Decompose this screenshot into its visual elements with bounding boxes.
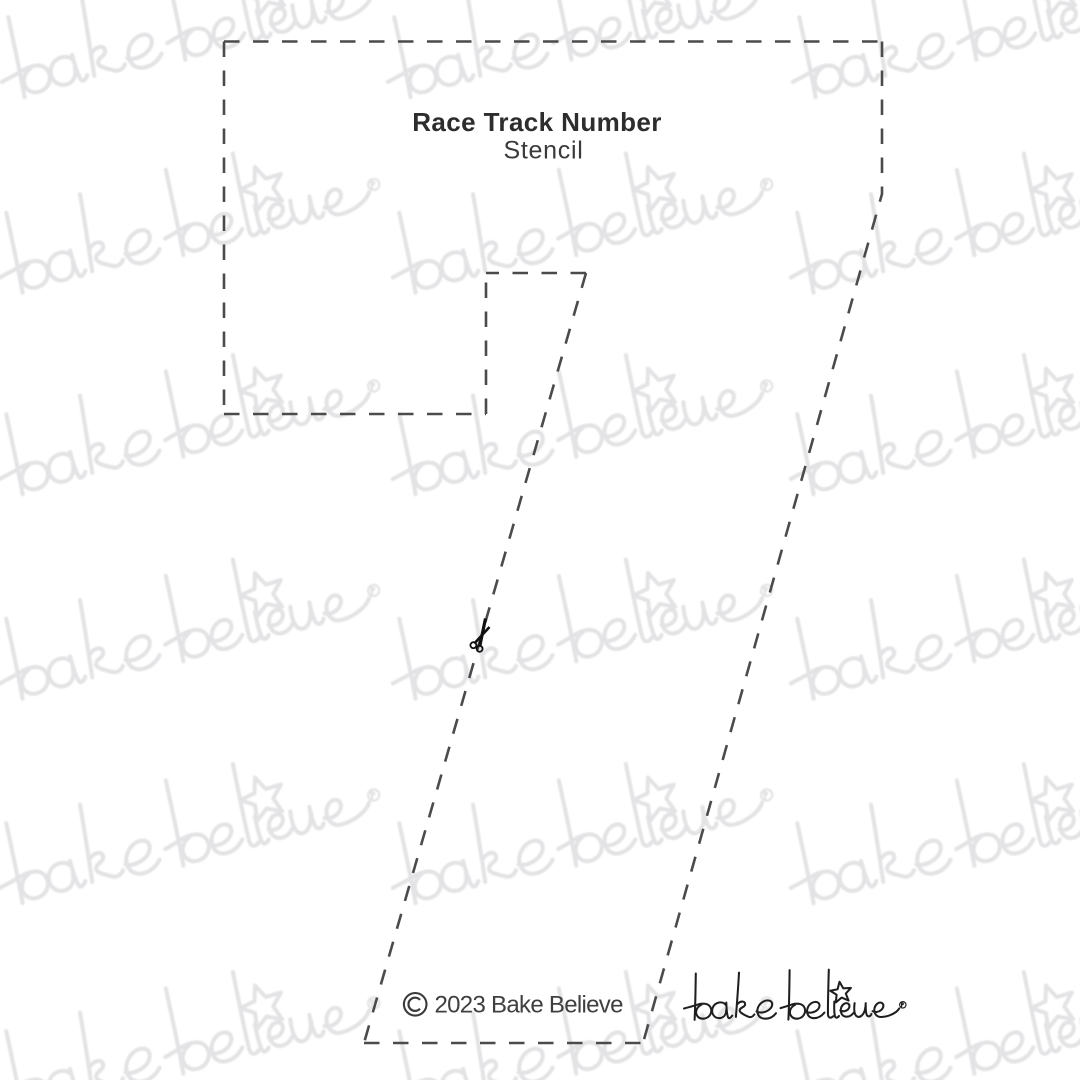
- svg-text:Race Track Number: Race Track Number: [412, 107, 662, 137]
- svg-text:Stencil: Stencil: [504, 137, 584, 165]
- svg-text:2023 Bake Believe: 2023 Bake Believe: [435, 992, 624, 1019]
